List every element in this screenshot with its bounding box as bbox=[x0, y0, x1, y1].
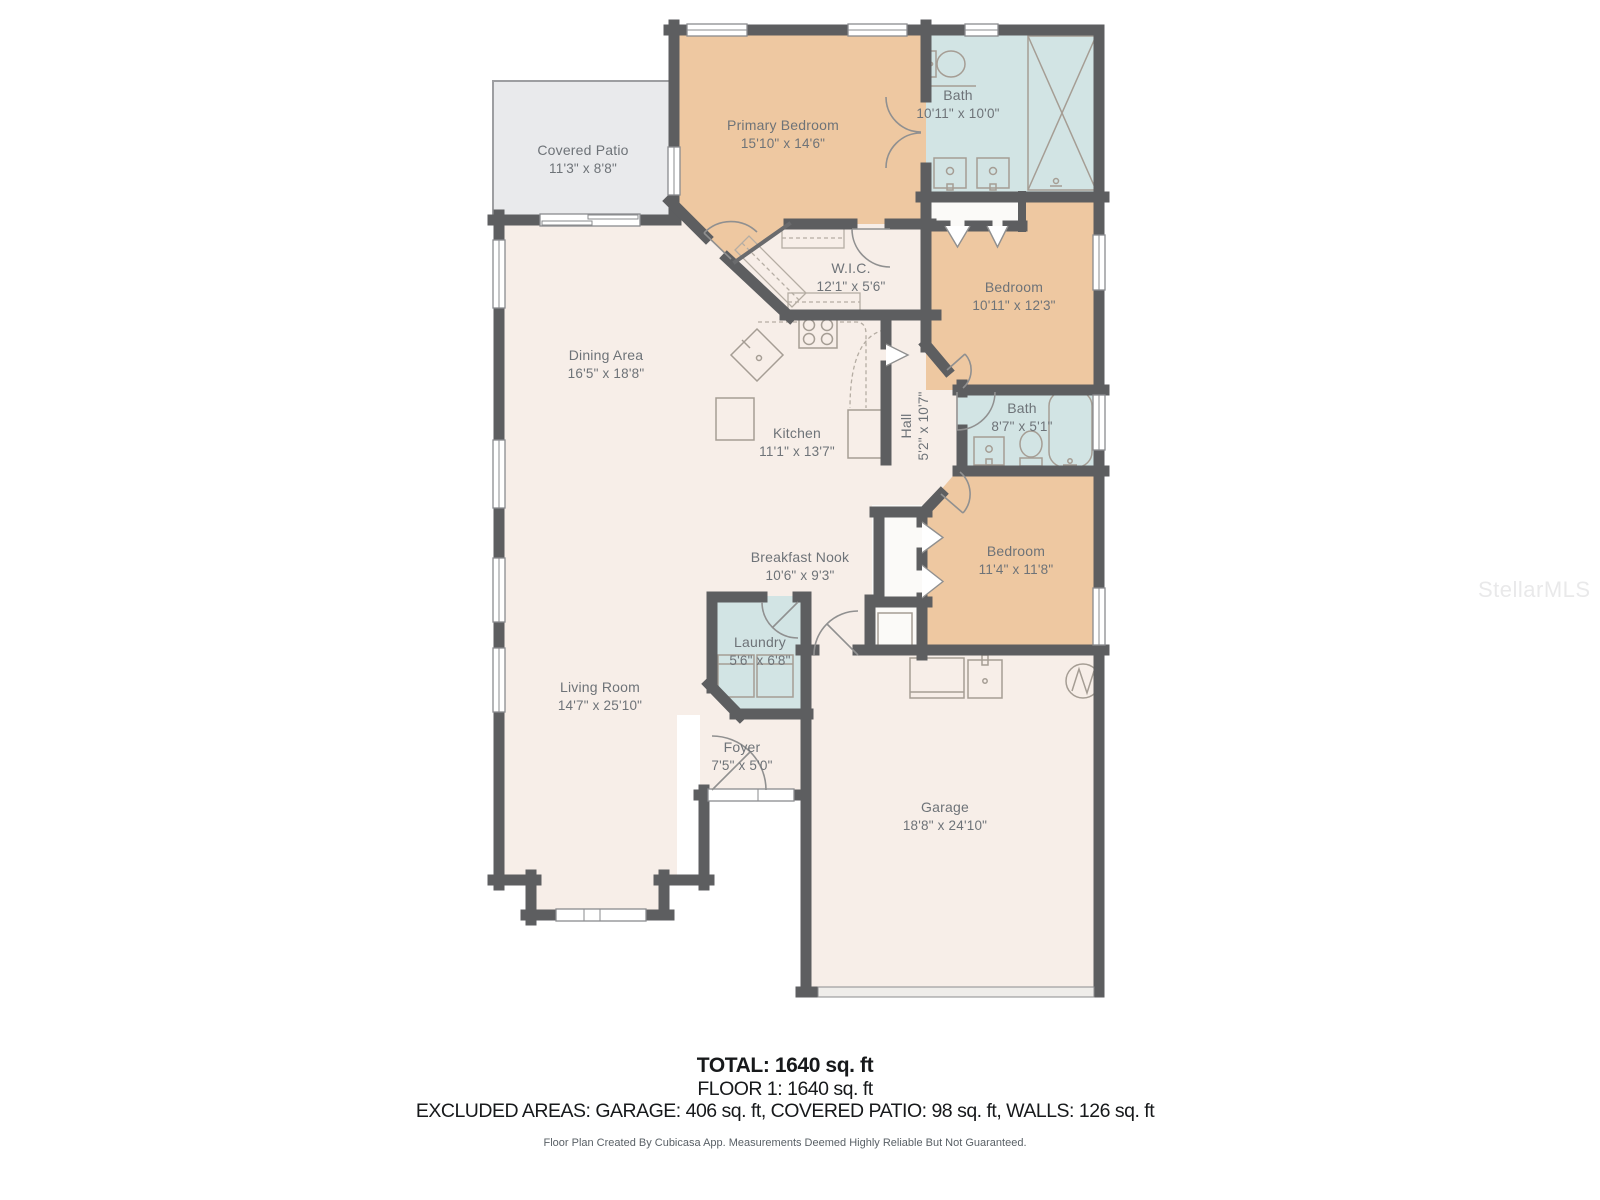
room-label-garage: Garage bbox=[921, 799, 969, 815]
room-label-bath-primary: Bath bbox=[943, 87, 973, 103]
room-dims-covered-patio: 11'3" x 8'8" bbox=[549, 161, 617, 176]
dining-living-floor bbox=[497, 215, 677, 885]
floor-plan-page: Covered Patio 11'3" x 8'8" Primary Bedro… bbox=[0, 0, 1600, 1200]
window bbox=[848, 24, 907, 36]
window bbox=[668, 147, 680, 195]
room-dims-wic: 12'1" x 5'6" bbox=[817, 279, 886, 294]
window bbox=[687, 24, 747, 36]
window bbox=[1093, 235, 1105, 290]
room-label-hall: Hall bbox=[898, 414, 914, 439]
room-dims-hall: 5'2" x 10'7" bbox=[916, 392, 931, 461]
summary-floor: FLOOR 1: 1640 sq. ft bbox=[697, 1078, 873, 1100]
summary-total: TOTAL: 1640 sq. ft bbox=[697, 1054, 874, 1077]
summary-excluded: EXCLUDED AREAS: GARAGE: 406 sq. ft, COVE… bbox=[416, 1100, 1155, 1122]
room-label-living-room: Living Room bbox=[560, 679, 640, 695]
summary: TOTAL: 1640 sq. ft FLOOR 1: 1640 sq. ft … bbox=[416, 1054, 1155, 1149]
room-dims-laundry: 5'6" x 6'8" bbox=[729, 653, 790, 668]
room-label-bedroom-3: Bedroom bbox=[987, 543, 1045, 559]
room-label-foyer: Foyer bbox=[724, 739, 761, 755]
window bbox=[493, 648, 505, 712]
room-label-covered-patio: Covered Patio bbox=[537, 142, 628, 158]
room-dims-breakfast-nook: 10'6" x 9'3" bbox=[766, 568, 835, 583]
room-dims-bedroom-3: 11'4" x 11'8" bbox=[979, 562, 1054, 577]
room-dims-bedroom-2: 10'11" x 12'3" bbox=[972, 298, 1055, 313]
room-label-dining-area: Dining Area bbox=[569, 347, 644, 363]
room-label-bedroom-2: Bedroom bbox=[985, 279, 1043, 295]
garage-door bbox=[818, 987, 1094, 997]
room-label-primary-bedroom: Primary Bedroom bbox=[727, 117, 839, 133]
window bbox=[1093, 588, 1105, 645]
room-dims-living-room: 14'7" x 25'10" bbox=[558, 698, 642, 713]
bay-window bbox=[556, 909, 646, 921]
entry-door-sidelight bbox=[708, 789, 794, 801]
room-label-bath-2: Bath bbox=[1007, 400, 1037, 416]
room-label-wic: W.I.C. bbox=[831, 260, 870, 276]
floor-plan: Covered Patio 11'3" x 8'8" Primary Bedro… bbox=[0, 0, 1600, 1200]
window bbox=[493, 440, 505, 508]
room-label-breakfast-nook: Breakfast Nook bbox=[751, 549, 850, 565]
sliding-door bbox=[540, 214, 640, 226]
room-dims-primary-bedroom: 15'10" x 14'6" bbox=[741, 136, 825, 151]
room-dims-kitchen: 11'1" x 13'7" bbox=[759, 444, 835, 459]
room-dims-foyer: 7'5" x 5'0" bbox=[711, 758, 772, 773]
room-dims-dining-area: 16'5" x 18'8" bbox=[568, 366, 645, 381]
room-dims-bath-2: 8'7" x 5'1" bbox=[991, 419, 1052, 434]
stellar-mls-watermark: StellarMLS bbox=[1478, 577, 1591, 602]
room-dims-garage: 18'8" x 24'10" bbox=[903, 818, 987, 833]
window bbox=[1093, 395, 1105, 450]
summary-disclaimer: Floor Plan Created By Cubicasa App. Meas… bbox=[543, 1137, 1026, 1149]
room-label-laundry: Laundry bbox=[734, 634, 786, 650]
window bbox=[965, 24, 998, 36]
window bbox=[493, 558, 505, 622]
room-label-kitchen: Kitchen bbox=[773, 425, 821, 441]
window bbox=[493, 240, 505, 308]
room-dims-bath-primary: 10'11" x 10'0" bbox=[916, 106, 999, 121]
